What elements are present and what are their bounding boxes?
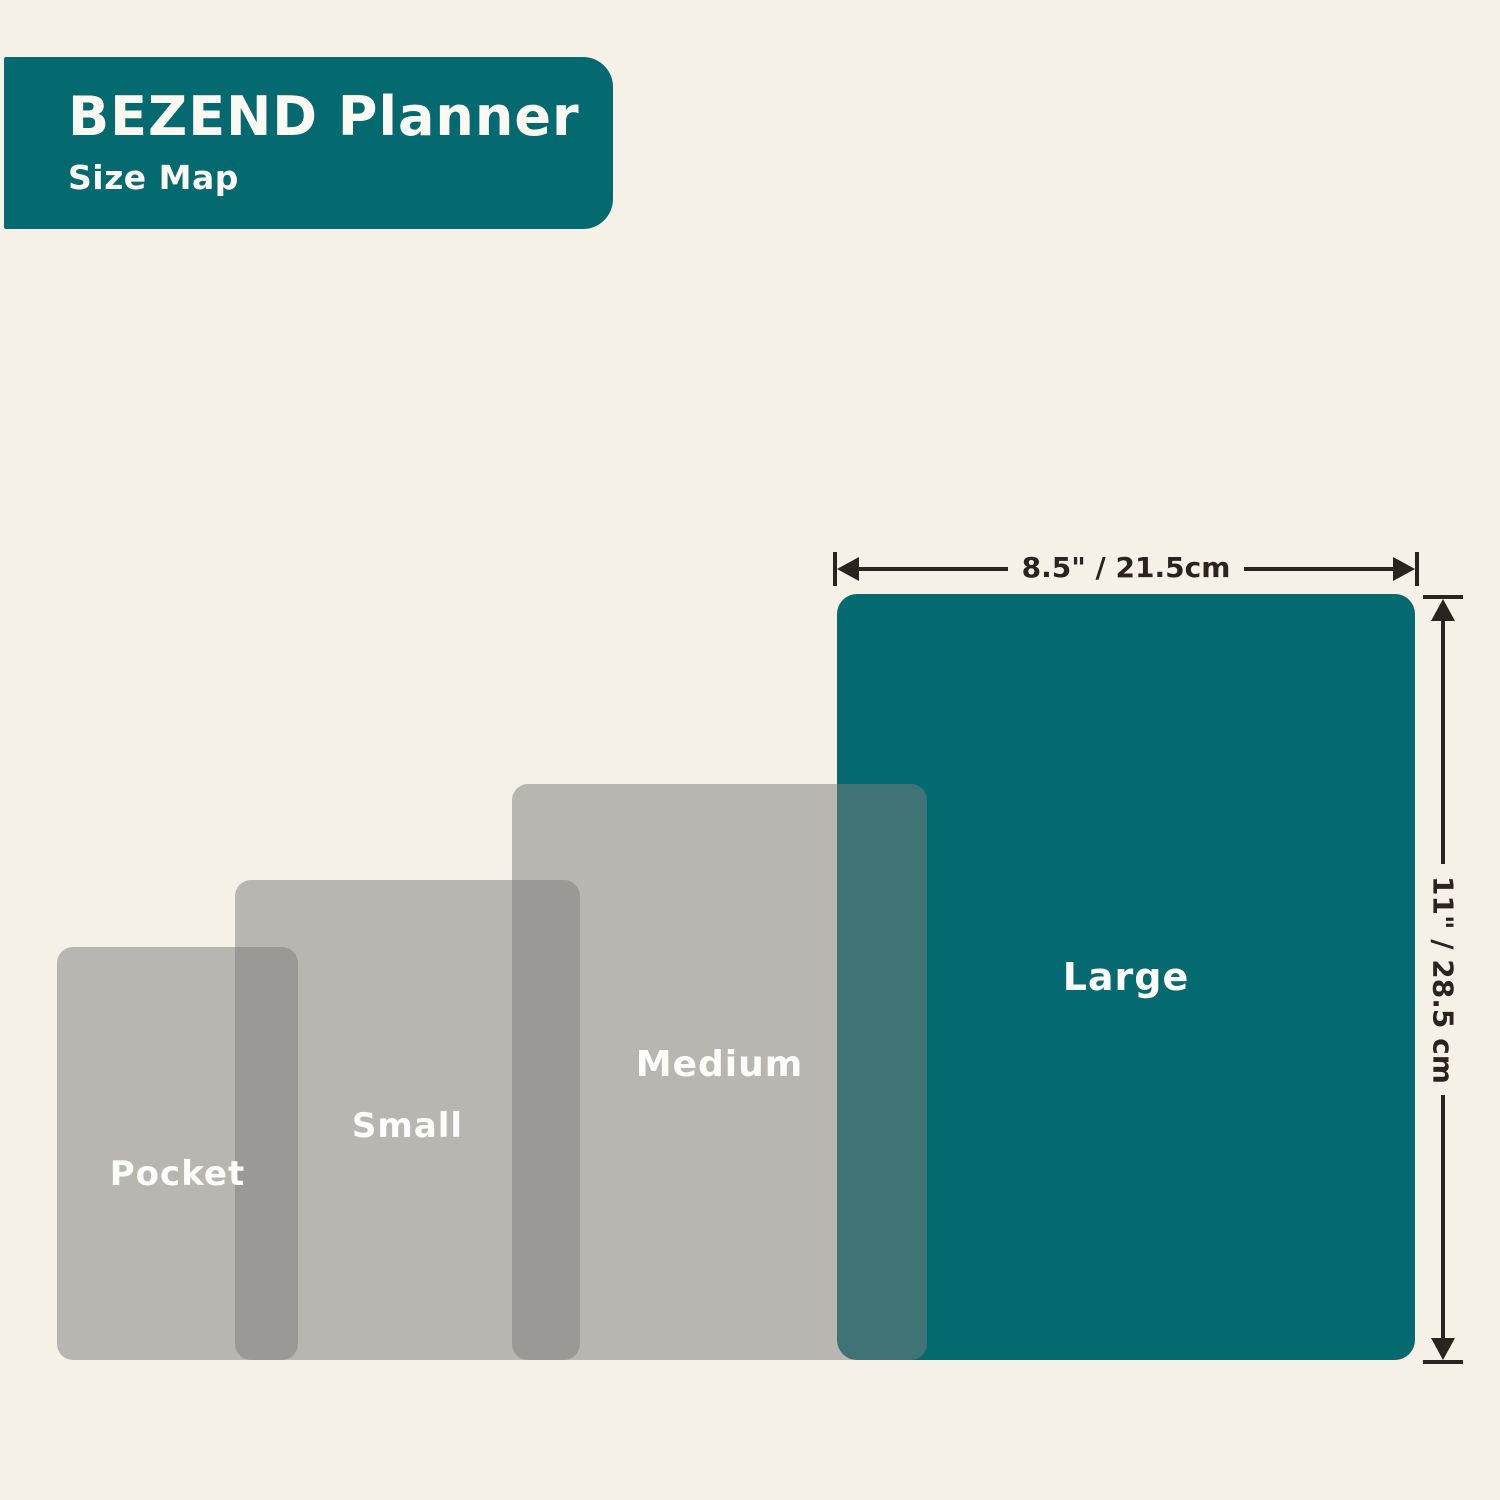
size-rect-pocket: Pocket [57, 947, 298, 1360]
dimension-end-cap [1415, 552, 1419, 586]
diagram-subtitle: Size Map [68, 158, 613, 197]
arrow-up-icon [1431, 599, 1455, 621]
width-dimension-label: 8.5" / 21.5cm [1008, 551, 1245, 584]
width-dimension: 8.5" / 21.5cm [833, 552, 1419, 586]
brand-title: BEZEND Planner [68, 89, 613, 146]
dimension-line [859, 567, 1008, 571]
dimension-line [1441, 1095, 1445, 1338]
header-badge: BEZEND Planner Size Map [4, 57, 613, 229]
size-label-medium: Medium [636, 1044, 804, 1085]
arrow-down-icon [1431, 1338, 1455, 1360]
height-dimension-label: 11" / 28.5 cm [1427, 864, 1460, 1096]
size-map-diagram: BEZEND Planner Size Map Large Medium Sma… [0, 0, 1500, 1500]
height-dimension: 11" / 28.5 cm [1423, 595, 1463, 1364]
size-label-large: Large [1063, 955, 1190, 999]
arrow-left-icon [837, 557, 859, 581]
arrow-right-icon [1393, 557, 1415, 581]
dimension-line [1244, 567, 1393, 571]
size-label-pocket: Pocket [110, 1154, 245, 1194]
dimension-end-cap [1423, 1360, 1463, 1364]
size-label-small: Small [352, 1106, 463, 1146]
dimension-line [1441, 621, 1445, 864]
